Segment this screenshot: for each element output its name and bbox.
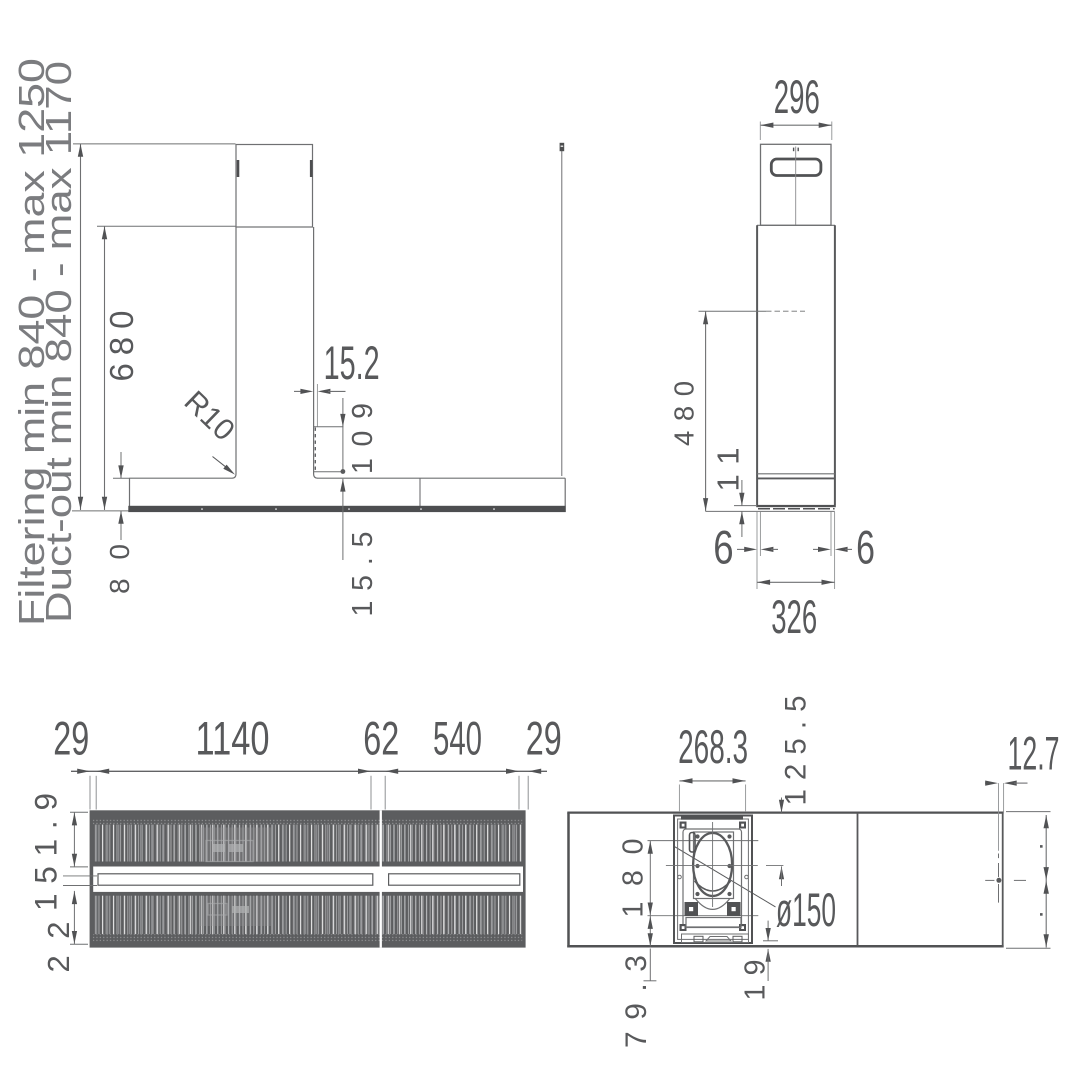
svg-text:6: 6 <box>856 521 875 574</box>
svg-text:29: 29 <box>53 712 89 765</box>
svg-text:62: 62 <box>363 712 399 765</box>
svg-text:12.7: 12.7 <box>1008 727 1060 780</box>
svg-text:540: 540 <box>433 712 482 765</box>
svg-text:Duct-out min 840 - max 1170: Duct-out min 840 - max 1170 <box>38 61 79 623</box>
svg-text:151.9: 151.9 <box>28 793 64 911</box>
svg-text:15.5: 15.5 <box>347 532 379 617</box>
svg-text:19: 19 <box>740 960 772 1001</box>
svg-text:480: 480 <box>669 381 700 446</box>
svg-text:180: 180 <box>617 839 649 918</box>
svg-text:6: 6 <box>713 521 733 573</box>
svg-text:29: 29 <box>526 712 562 765</box>
svg-text:R10: R10 <box>178 385 241 448</box>
svg-text:22: 22 <box>41 922 76 973</box>
svg-text:15.2: 15.2 <box>324 336 380 389</box>
svg-text:125.5: 125.5 <box>780 696 813 806</box>
svg-text:109: 109 <box>347 403 379 474</box>
svg-text:680: 680 <box>103 311 140 382</box>
svg-text:296: 296 <box>774 70 820 123</box>
svg-text:79.3: 79.3 <box>620 955 653 1048</box>
svg-text:ø150: ø150 <box>776 885 836 937</box>
svg-text:80: 80 <box>104 544 135 594</box>
svg-text:1140: 1140 <box>196 712 270 765</box>
svg-text:326: 326 <box>771 590 817 643</box>
svg-text:11: 11 <box>711 448 746 492</box>
svg-text:268.3: 268.3 <box>678 720 748 773</box>
